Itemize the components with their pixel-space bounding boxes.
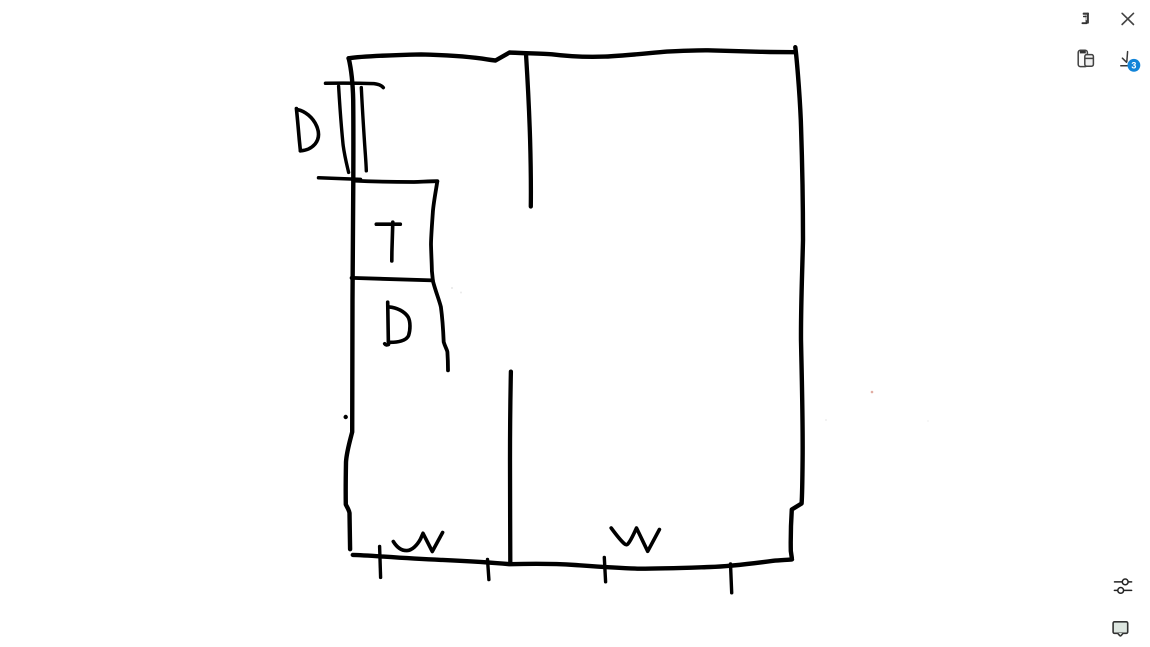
svg-text:3: 3 (1131, 61, 1136, 71)
